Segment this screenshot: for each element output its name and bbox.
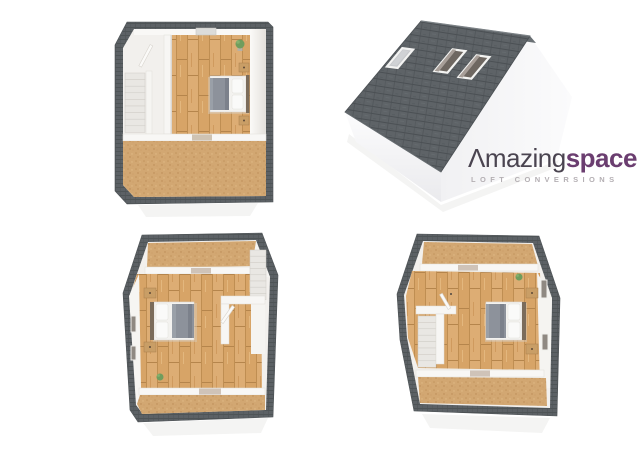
floorplan-top-render (110, 15, 282, 219)
pillow (156, 322, 168, 338)
eaves-window (541, 280, 547, 298)
pillow (508, 322, 520, 338)
carpet-area (123, 141, 266, 197)
pillow (232, 95, 243, 109)
brand-tagline: LOFT CONVERSIONS (468, 175, 637, 184)
brand-name: Λmazingspace (468, 145, 637, 171)
pillow (156, 304, 168, 320)
bed (150, 302, 197, 342)
brand-name-part2: space (566, 143, 637, 173)
pillow (232, 79, 243, 93)
headboard (246, 75, 250, 113)
bed (208, 75, 250, 114)
doorway-threshold (470, 371, 490, 377)
brand-name-part1: Λmazing (468, 143, 566, 173)
eaves-wall-right (250, 29, 266, 135)
doorway-threshold (192, 135, 212, 141)
doorway-threshold (191, 268, 211, 274)
top-wall (420, 264, 538, 271)
floorplan-left-render (113, 230, 288, 445)
plan-base-shadow (422, 414, 550, 433)
plan-base-shadow (138, 203, 258, 217)
eaves-window (131, 346, 136, 360)
bed (485, 302, 527, 342)
headboard (150, 302, 154, 340)
carpet-area-top (147, 241, 258, 268)
page: Λmazingspace LOFT CONVERSIONS (0, 0, 640, 452)
floorplan-right-render (392, 228, 567, 445)
logo: Λmazingspace LOFT CONVERSIONS (468, 145, 637, 184)
carpet-area-bottom (418, 377, 547, 406)
doorway-threshold (199, 389, 221, 395)
headboard (522, 302, 526, 340)
eaves-window (542, 334, 548, 350)
pillow (508, 304, 520, 320)
eaves-window (131, 316, 136, 332)
carpet-area-top (422, 242, 538, 266)
doorway-threshold (458, 265, 478, 271)
window-mark (196, 28, 216, 35)
plant (516, 274, 523, 281)
plant (157, 374, 164, 381)
